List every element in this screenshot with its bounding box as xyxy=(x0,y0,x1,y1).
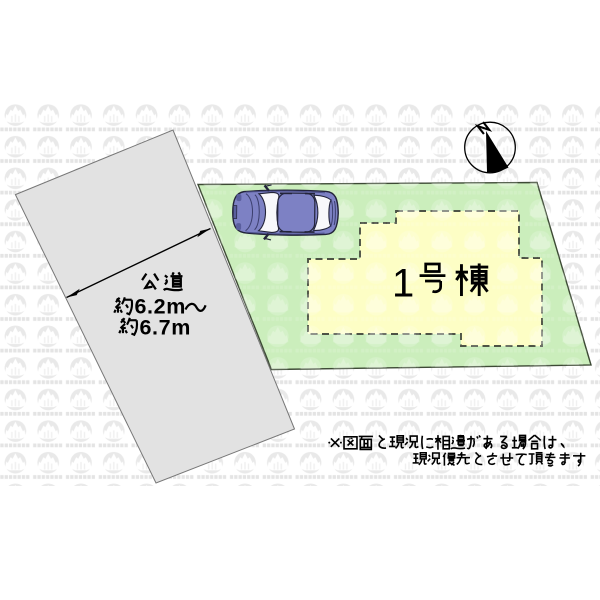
svg-text:6.7m: 6.7m xyxy=(140,316,191,340)
svg-text:1: 1 xyxy=(392,262,414,306)
